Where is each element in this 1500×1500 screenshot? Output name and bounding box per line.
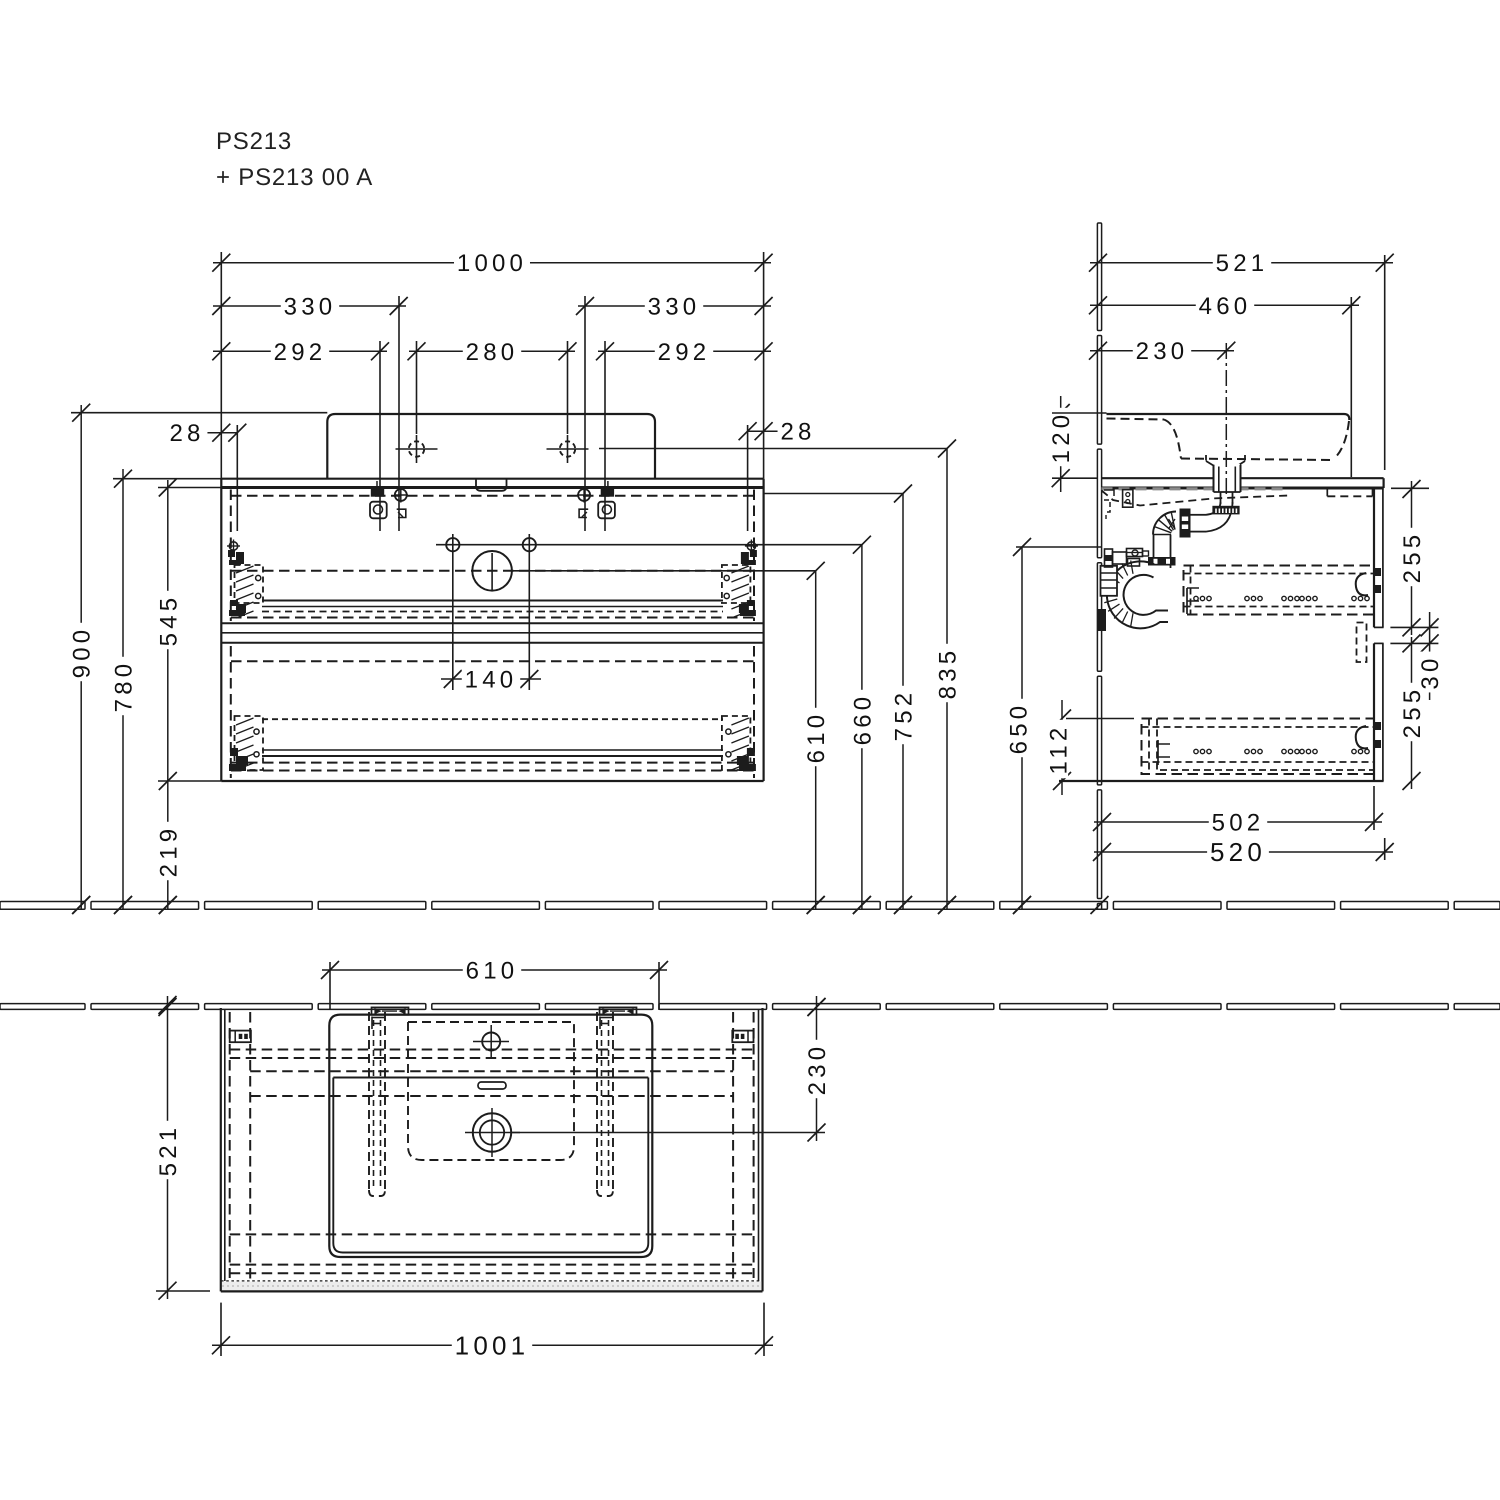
svg-text:521: 521 — [155, 1124, 182, 1177]
svg-text:610: 610 — [803, 711, 830, 764]
svg-text:292: 292 — [658, 339, 711, 366]
svg-text:1001: 1001 — [455, 1331, 530, 1361]
svg-text:30: 30 — [1417, 654, 1444, 689]
svg-text:28: 28 — [780, 419, 815, 446]
svg-text:520: 520 — [1210, 837, 1266, 867]
svg-text:292: 292 — [274, 339, 327, 366]
svg-text:660: 660 — [849, 693, 876, 746]
svg-text:230: 230 — [1136, 338, 1189, 365]
svg-text:330: 330 — [648, 294, 701, 321]
svg-text:255: 255 — [1399, 531, 1426, 584]
svg-text:502: 502 — [1212, 810, 1265, 837]
svg-text:112: 112 — [1046, 724, 1073, 775]
svg-text:219: 219 — [155, 825, 182, 878]
svg-text:+ PS213 00 A: + PS213 00 A — [216, 164, 373, 191]
svg-text:28: 28 — [169, 420, 204, 447]
svg-text:330: 330 — [284, 294, 337, 321]
svg-text:120: 120 — [1048, 411, 1075, 464]
svg-text:280: 280 — [466, 339, 519, 366]
svg-text:460: 460 — [1199, 293, 1252, 320]
svg-text:900: 900 — [69, 626, 96, 679]
svg-text:521: 521 — [1216, 250, 1269, 277]
svg-text:PS213: PS213 — [216, 128, 292, 155]
svg-text:835: 835 — [935, 647, 962, 700]
svg-text:650: 650 — [1006, 702, 1033, 755]
svg-text:780: 780 — [111, 660, 138, 713]
svg-text:752: 752 — [891, 689, 918, 742]
svg-text:610: 610 — [466, 958, 519, 985]
svg-text:545: 545 — [155, 594, 182, 647]
svg-text:230: 230 — [804, 1043, 831, 1096]
svg-text:1000: 1000 — [457, 250, 527, 277]
svg-text:255: 255 — [1399, 686, 1426, 739]
svg-text:140: 140 — [465, 667, 518, 694]
